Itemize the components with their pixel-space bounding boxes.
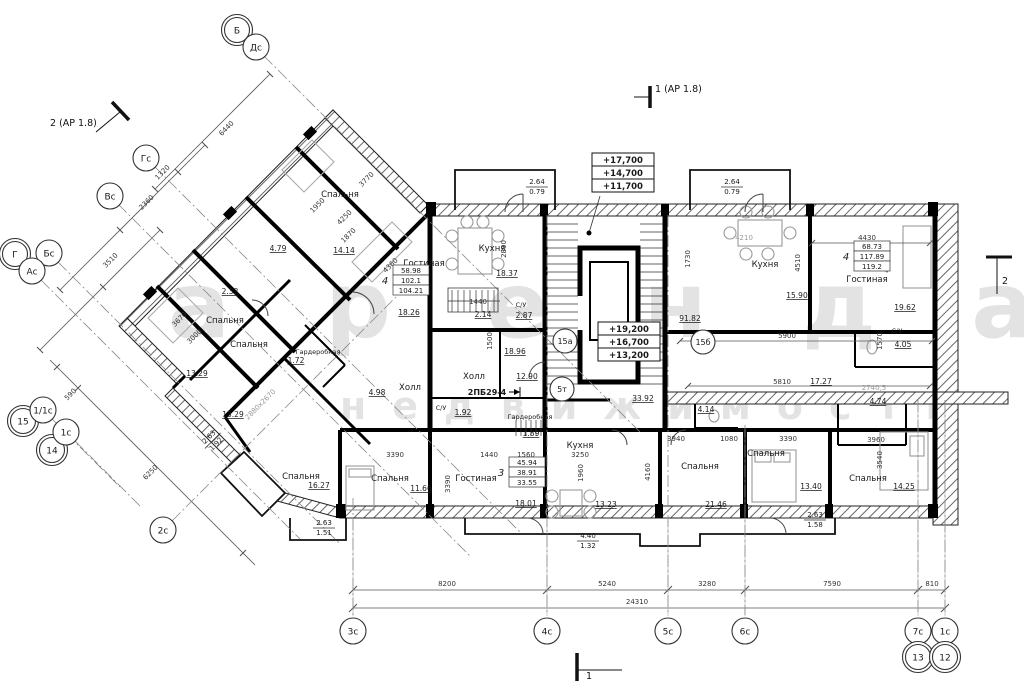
room-label: Холл [463,372,485,382]
area-label: 18.37 [496,269,518,278]
axis-label: Г [12,251,18,261]
svg-text:2.63: 2.63 [316,519,332,527]
dim-label: 3540 [876,451,884,469]
elevation-stair-value: +19,200 [609,325,649,335]
area-label: 13.40 [800,482,822,491]
dim-label: 3770 [357,170,375,188]
unit-number: 5т [557,385,567,394]
axis-label: Вс [104,193,115,203]
floor-plan-page: аренда недвижимость [0,0,1024,696]
area-label: 12.90 [516,372,538,381]
axis-label: 3с [348,628,359,638]
area-label: 14.25 [893,482,915,491]
leaders [509,196,600,397]
area-label: 1.92 [455,408,472,417]
area-table-left-value: 104.21 [399,287,424,295]
area-label: 13.29 [222,410,244,419]
area-table-bottom-room-count: 3 [498,468,504,479]
balcony-area-label: 2.631.58 [804,511,826,529]
room-label: Кухня [752,260,779,270]
svg-text:1.51: 1.51 [316,529,332,537]
elevation-stair-value: +13,200 [609,351,649,361]
axis-label: Гс [141,155,151,165]
area-label: 19.62 [894,303,916,312]
room-label: Спальня [371,474,409,484]
area-label: 4.98 [369,388,386,397]
axis-label: Б [234,27,240,37]
section-marker-2-ar: 2 (АР 1.8) [50,118,97,129]
room-label: С/У [516,301,527,309]
dim-label: 4510 [794,254,802,272]
area-label: 2.32 [222,287,239,296]
room-label: Гардеробная [508,413,553,421]
dim-label: 1570 [876,332,884,350]
elevation-upper-value: +14,700 [603,169,643,179]
room-label: Спальня [230,340,268,350]
dim-label: 3390 [386,451,404,459]
area-label: 11.66 [410,484,432,493]
room-label: Гардеробная [296,348,341,356]
balcony-area-label: 2.631.51 [313,519,335,537]
axis-label: 6с [740,628,751,638]
area-label: 18.26 [398,308,420,317]
area-label: 91.82 [679,314,701,323]
area-label: 2.87 [516,311,533,320]
balcony-area-label: 4.401.32 [577,532,599,550]
elevation-upper-value: +17,700 [603,156,643,166]
elevation-upper-value: +11,700 [603,182,643,192]
dim-label: 1440 [469,298,487,306]
axis-label: 1с [61,429,72,439]
dim-label: 24310 [626,598,648,606]
dim-label: 7590 [823,580,841,588]
light-label: 4210 [735,234,753,242]
dim-label: 1870 [339,226,357,244]
dim-label: 6440 [217,119,235,137]
room-label: Холл [399,383,421,393]
dim-label: 3280 [698,580,716,588]
room-label: Спальня [206,316,244,326]
dim-label: 3510 [101,251,119,269]
room-label: С/У [436,404,447,412]
area-label: 13.29 [186,369,208,378]
svg-text:1.32: 1.32 [580,542,596,550]
axis-label: 13 [912,654,923,664]
area-table-right-value: 68.73 [862,243,882,251]
dim-label: 3250 [571,451,589,459]
dim-label: 3390 [779,435,797,443]
walls [157,147,935,518]
dim-label: 4250 [335,208,353,226]
unit-number: 15б [695,338,710,347]
area-table-bottom-value: 45.94 [517,459,538,467]
room-label: Гостиная [846,275,887,285]
balcony-area-label: 2.640.79 [526,178,548,196]
axis-label: Ас [26,268,37,278]
elevator-door-gap [576,296,584,330]
axis-label: 4с [542,628,553,638]
axis-label: Дс [250,44,262,54]
area-label: 4.05 [895,340,912,349]
svg-text:2.63: 2.63 [807,511,823,519]
area-table-right-value: 117.89 [860,253,885,261]
room-label: С/У [892,327,903,335]
axis-label: 1/1с [33,407,52,417]
area-table-bottom-value: 33.55 [517,479,537,487]
area-table-bottom-value: 38.91 [517,469,537,477]
svg-text:0.79: 0.79 [529,188,545,196]
lintel-mark: 2ПБ29-4 [468,388,507,397]
area-label: 1.89 [523,429,540,438]
area-label: 4.14 [698,405,715,414]
area-label: 2.14 [475,310,492,319]
elevation-stair-value: +16,700 [609,338,649,348]
dim-label: 5240 [598,580,616,588]
area-label: 13.23 [595,500,617,509]
dim-label: 810 [925,580,938,588]
svg-text:4.40: 4.40 [580,532,596,540]
axis-label: 15 [17,418,28,428]
area-label: 14.14 [333,246,355,255]
floor-plan-drawing: СпальняСпальняСпальняСпальняСпальняСпаль… [0,0,1024,696]
room-label: Гостиная [455,474,496,484]
dim-label: 1960 [577,464,585,482]
dim-label: 3390 [444,475,452,493]
dim-label: 4160 [644,463,652,481]
dim-label: 590 [63,387,78,402]
area-label: 18.01 [515,499,537,508]
axis-label: Бс [43,250,54,260]
dim-label: 8200 [438,580,456,588]
area-label: 17.27 [810,377,832,386]
svg-text:0.79: 0.79 [724,188,740,196]
dim-label: 3940 [667,435,685,443]
svg-text:2.64: 2.64 [724,178,740,186]
room-label: Спальня [321,190,359,200]
axis-label: 5с [663,628,674,638]
area-label: 18.96 [504,347,526,356]
room-label: Кухня [567,441,594,451]
area-label: 16.27 [308,481,330,490]
axis-label: 7с [913,628,924,638]
unit-number: 15а [557,337,572,346]
dim-label: 1440 [480,451,498,459]
room-label: Спальня [747,449,785,459]
section-marker-1: 1 [586,671,592,682]
dim-label: 5900 [778,332,796,340]
area-table-right-value: 119.2 [862,263,882,271]
dim-label: 2890 [500,240,508,258]
section-marker-1-ar: 1 (АР 1.8) [655,84,702,95]
area-table-right-room-count: 4 [843,252,849,263]
area-label: 1.72 [288,356,305,365]
area-table-left-room-count: 4 [382,276,388,287]
axis-label: 14 [46,447,58,457]
dim-label: 1500 [486,332,494,350]
area-label: 4.79 [270,244,287,253]
area-table-left-value: 58.98 [401,267,421,275]
room-label: Спальня [849,474,887,484]
section-marker-2: 2 [1002,276,1008,287]
dim-label: 1080 [720,435,738,443]
svg-text:1.58: 1.58 [807,521,823,529]
svg-text:2.64: 2.64 [529,178,545,186]
area-label: 4.74 [870,397,887,406]
dim-label: 1730 [684,250,692,268]
axis-label: 2с [158,527,169,537]
room-label: Спальня [681,462,719,472]
area-label: 33.92 [632,394,654,403]
light-label: 2740,5 [862,384,887,392]
axis-label: 1с [940,628,951,638]
area-label: 15.90 [786,291,808,300]
dim-label: 6250 [141,463,159,481]
dim-label: 3960 [867,436,885,444]
dim-label: 5810 [773,378,791,386]
axis-label: 12 [939,654,950,664]
area-label: 21.46 [705,500,727,509]
balcony-area-label: 2.640.79 [721,178,743,196]
area-table-left-value: 102.1 [401,277,421,285]
dim-label: 2360 [137,193,155,211]
